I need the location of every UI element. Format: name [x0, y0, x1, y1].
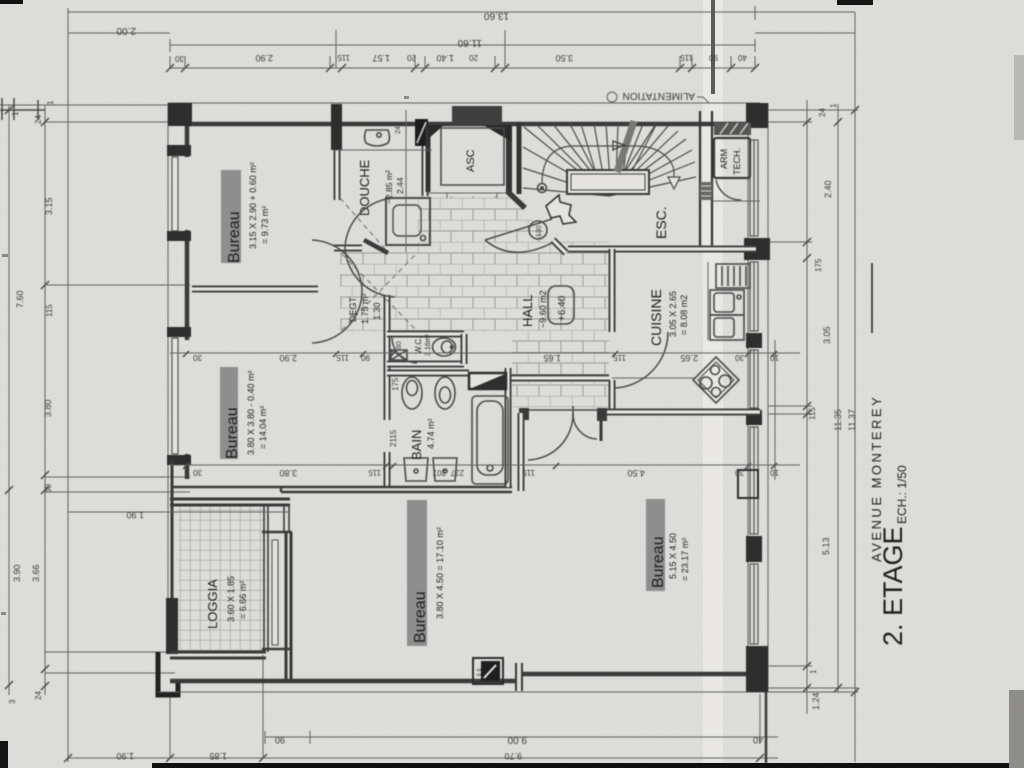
svg-text:115: 115	[336, 353, 349, 362]
svg-text:1.30: 1.30	[372, 302, 382, 320]
svg-text:24: 24	[395, 126, 402, 134]
svg-text:DOUCHE: DOUCHE	[357, 159, 372, 216]
svg-text:1.90: 1.90	[126, 510, 144, 520]
svg-text:175: 175	[814, 258, 823, 272]
svg-text:90: 90	[275, 735, 285, 745]
svg-text:3.05: 3.05	[822, 326, 832, 344]
svg-text:ALIMENTATION: ALIMENTATION	[623, 90, 695, 101]
svg-text:TECH.: TECH.	[732, 148, 742, 175]
svg-text:24: 24	[34, 691, 43, 700]
svg-text:5.15 X 4.50: 5.15 X 4.50	[668, 533, 678, 579]
svg-text:10: 10	[770, 468, 779, 477]
svg-text:30: 30	[193, 468, 202, 477]
svg-text:3.60 X 1.85: 3.60 X 1.85	[226, 576, 236, 622]
svg-text:1: 1	[11, 111, 20, 116]
svg-text:30: 30	[193, 353, 202, 362]
svg-text:30: 30	[735, 353, 744, 362]
svg-text:+6.40: +6.40	[557, 295, 568, 321]
svg-text:115: 115	[337, 53, 350, 62]
svg-text:E E: E E	[477, 667, 483, 676]
svg-text:2.65: 2.65	[680, 353, 698, 363]
svg-text:3.80: 3.80	[43, 399, 53, 417]
svg-text:3.80 X 4.50 = 17.10 m²: 3.80 X 4.50 = 17.10 m²	[435, 527, 445, 619]
svg-text:30: 30	[735, 468, 744, 477]
svg-text:1: 1	[829, 103, 838, 108]
svg-text:115: 115	[522, 468, 535, 477]
svg-text:3.80 X 3.80 - 0.40 m²: 3.80 X 3.80 - 0.40 m²	[246, 370, 256, 455]
svg-text:20: 20	[469, 53, 478, 62]
svg-text:CUISINE: CUISINE	[648, 289, 664, 346]
svg-text:3.05 X 2.65: 3.05 X 2.65	[668, 291, 678, 337]
svg-text:2115: 2115	[389, 429, 398, 447]
svg-text:= 14.04 m²: = 14.04 m²	[258, 406, 268, 449]
svg-text:11.37: 11.37	[847, 409, 857, 431]
svg-text:Bureau: Bureau	[650, 536, 667, 588]
svg-text:DEGT: DEGT	[348, 296, 358, 322]
svg-text:40: 40	[738, 53, 747, 62]
svg-text:11.35: 11.35	[833, 409, 843, 431]
svg-text:2.00: 2.00	[116, 25, 136, 36]
svg-text:HALL: HALL	[520, 294, 535, 327]
svg-text:4.50: 4.50	[627, 468, 645, 478]
svg-text:1.65: 1.65	[543, 353, 561, 363]
svg-text:3.90: 3.90	[12, 564, 22, 582]
svg-text:175: 175	[391, 377, 400, 391]
svg-text:Bureau: Bureau	[412, 591, 429, 643]
svg-text:9.70: 9.70	[504, 751, 522, 761]
svg-text:1.90: 1.90	[116, 751, 134, 761]
svg-text:3.80: 3.80	[279, 468, 297, 478]
svg-text:= 9.73 m²: = 9.73 m²	[260, 206, 270, 244]
svg-text:24: 24	[34, 115, 43, 124]
svg-text:2.90: 2.90	[255, 53, 273, 63]
svg-text:115: 115	[613, 353, 626, 362]
svg-text:1: 1	[809, 669, 818, 674]
svg-text:115: 115	[680, 53, 693, 62]
svg-text:Bureau: Bureau	[226, 211, 243, 263]
svg-text:1.24: 1.24	[811, 692, 821, 710]
svg-text:3.66: 3.66	[31, 564, 41, 582]
svg-text:ECH.: 1/50: ECH.: 1/50	[895, 465, 909, 524]
svg-text:115: 115	[368, 468, 381, 477]
svg-text:90: 90	[709, 53, 718, 62]
svg-text:= 8.08 m2: = 8.08 m2	[679, 295, 689, 335]
svg-text:2.40: 2.40	[823, 180, 833, 198]
svg-text:ARM: ARM	[719, 149, 729, 169]
svg-text:90: 90	[361, 353, 370, 362]
svg-text:207: 207	[432, 468, 446, 477]
svg-text:7.60: 7.60	[15, 290, 25, 308]
svg-text:1.85: 1.85	[209, 751, 227, 761]
svg-text:9.00: 9.00	[507, 734, 527, 745]
svg-text:11.60: 11.60	[457, 37, 482, 48]
svg-text:= 23.17 m²: = 23.17 m²	[680, 538, 690, 581]
svg-text:5.13: 5.13	[821, 537, 831, 555]
svg-text:3.15 X 2.90 + 0.60 m²: 3.15 X 2.90 + 0.60 m²	[248, 162, 258, 249]
svg-text:10: 10	[770, 353, 779, 362]
svg-text:3.15: 3.15	[44, 197, 54, 215]
svg-text:1: 1	[46, 100, 55, 105]
svg-text:40: 40	[753, 735, 763, 745]
svg-text:~9.60 m2: ~9.60 m2	[538, 290, 548, 328]
svg-text:115: 115	[808, 407, 817, 420]
svg-text:ASC: ASC	[465, 149, 477, 172]
svg-text:3.50: 3.50	[555, 53, 573, 63]
svg-text:24: 24	[818, 108, 827, 117]
svg-text:ESC.: ESC.	[653, 206, 669, 239]
svg-text:2.90: 2.90	[279, 353, 297, 363]
svg-text:30: 30	[44, 484, 53, 493]
svg-text:13.60: 13.60	[484, 10, 509, 21]
svg-text:1.57: 1.57	[372, 53, 390, 63]
svg-text:4.74 m²: 4.74 m²	[426, 418, 436, 449]
svg-text:W.C.: W.C.	[414, 337, 423, 354]
svg-text:Bureau: Bureau	[224, 407, 241, 459]
svg-text:115: 115	[45, 304, 54, 317]
svg-text:2. ETAGE: 2. ETAGE	[878, 526, 908, 646]
svg-text:130: 130	[536, 225, 543, 237]
svg-text:237: 237	[450, 468, 464, 477]
svg-text:= 6.66 m²: = 6.66 m²	[238, 581, 248, 619]
svg-text:1.40: 1.40	[436, 53, 454, 63]
svg-text:80: 80	[396, 341, 403, 349]
svg-text:3: 3	[8, 699, 17, 704]
svg-text:20: 20	[407, 53, 416, 62]
svg-text:BAIN: BAIN	[409, 430, 424, 460]
svg-text:30: 30	[175, 54, 184, 63]
svg-text:LOGGIA: LOGGIA	[205, 579, 220, 629]
svg-text:2.44: 2.44	[395, 177, 405, 194]
